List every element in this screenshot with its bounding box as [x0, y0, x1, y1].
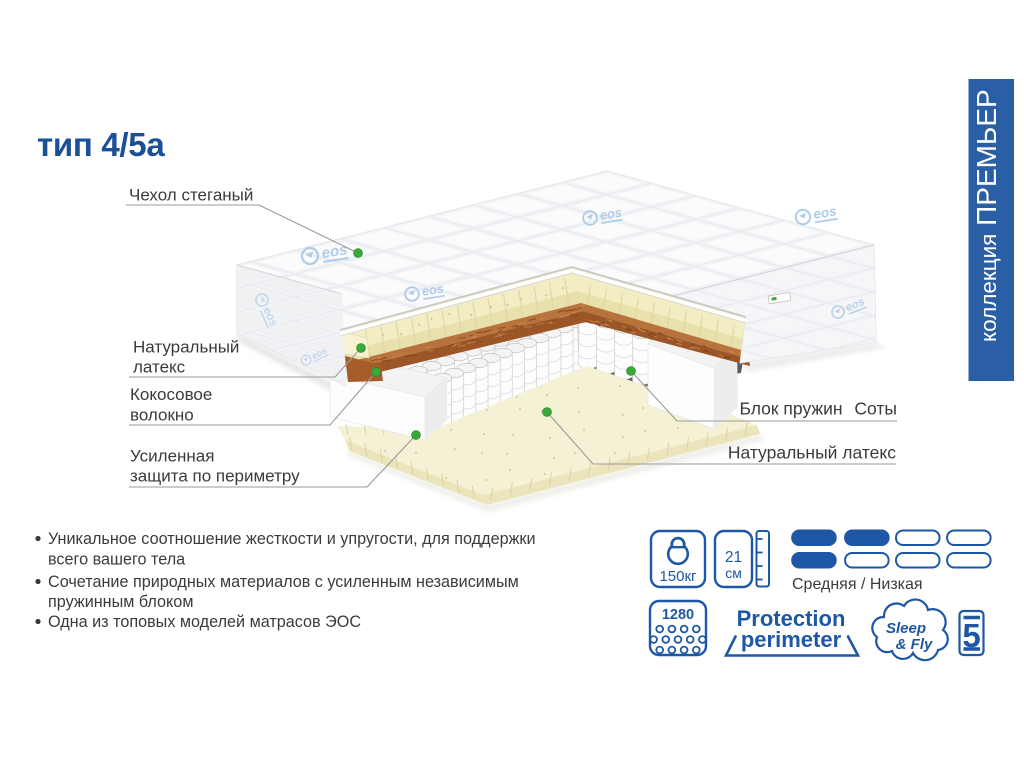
svg-text:волокно: волокно: [130, 406, 194, 425]
svg-text:всего вашего тела: всего вашего тела: [48, 551, 185, 569]
svg-text:защита по периметру: защита по периметру: [130, 467, 300, 486]
svg-text:латекс: латекс: [133, 358, 186, 377]
svg-text:Блок пружин Соты: Блок пружин Соты: [739, 399, 897, 419]
svg-text:Сочетание природных материалов: Сочетание природных материалов с усиленн…: [48, 573, 519, 591]
svg-text:150кг: 150кг: [659, 568, 697, 585]
svg-text:1280: 1280: [662, 607, 694, 623]
svg-text:Одна из топовых моделей матрас: Одна из топовых моделей матрасов ЭОС: [48, 613, 361, 631]
svg-text:perimeter: perimeter: [741, 627, 842, 652]
svg-text:Средняя / Низкая: Средняя / Низкая: [792, 576, 923, 593]
svg-text:& Fly: & Fly: [896, 636, 933, 653]
svg-text:см: см: [725, 565, 742, 581]
svg-text:Чехол стеганый: Чехол стеганый: [129, 186, 253, 205]
svg-text:коллекция ПРЕМЬЕР: коллекция ПРЕМЬЕР: [971, 89, 1002, 342]
svg-text:тип 4/5а: тип 4/5а: [37, 126, 165, 163]
svg-text:5: 5: [962, 617, 980, 654]
svg-text:пружинным блоком: пружинным блоком: [48, 593, 193, 611]
svg-text:Натуральный латекс: Натуральный латекс: [728, 443, 896, 463]
svg-text:21: 21: [725, 549, 742, 566]
svg-text:Уникальное соотношение жесткос: Уникальное соотношение жесткости и упруг…: [48, 530, 536, 548]
svg-text:Усиленная: Усиленная: [130, 447, 214, 466]
svg-text:Натуральный: Натуральный: [133, 338, 239, 357]
svg-text:Sleep: Sleep: [886, 620, 926, 637]
svg-text:Кокосовое: Кокосовое: [130, 385, 212, 404]
